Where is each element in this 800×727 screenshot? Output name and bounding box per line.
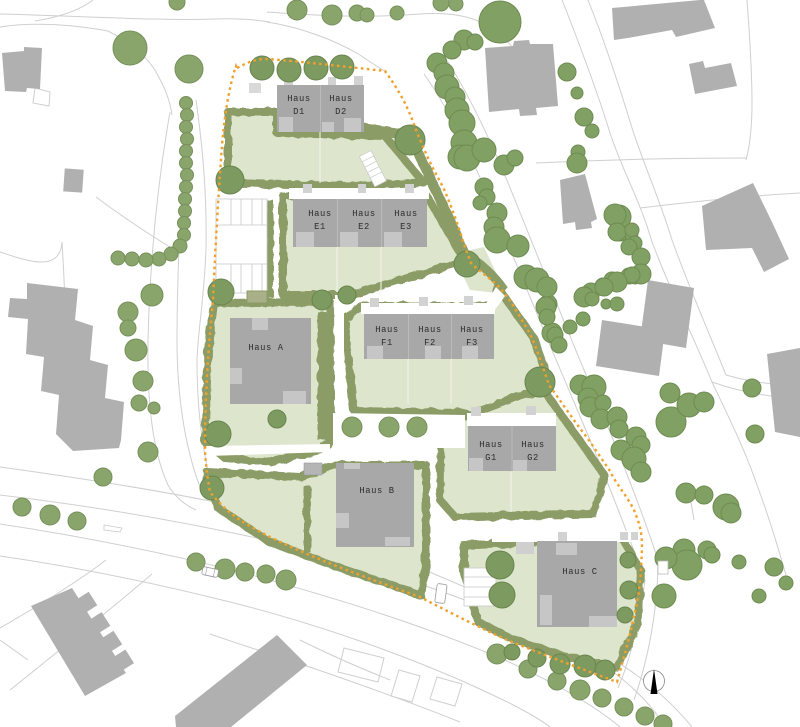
svg-text:Haus: Haus [329, 94, 353, 104]
svg-text:E3: E3 [400, 222, 412, 232]
svg-text:E1: E1 [314, 222, 326, 232]
svg-text:Haus B: Haus B [359, 486, 394, 496]
svg-text:Haus: Haus [394, 209, 418, 219]
svg-text:Haus: Haus [308, 209, 332, 219]
svg-text:Haus: Haus [375, 325, 399, 335]
svg-text:Haus: Haus [287, 94, 311, 104]
svg-text:G2: G2 [527, 453, 539, 463]
svg-text:D2: D2 [335, 107, 347, 117]
svg-text:F3: F3 [466, 338, 478, 348]
svg-text:Haus C: Haus C [562, 567, 597, 577]
svg-text:Haus: Haus [418, 325, 442, 335]
svg-text:F1: F1 [381, 338, 393, 348]
svg-text:Haus: Haus [479, 440, 503, 450]
svg-text:Haus: Haus [352, 209, 376, 219]
svg-text:Haus: Haus [460, 325, 484, 335]
svg-text:G1: G1 [485, 453, 497, 463]
svg-text:Haus: Haus [521, 440, 545, 450]
svg-text:D1: D1 [293, 107, 305, 117]
svg-text:Haus A: Haus A [248, 343, 283, 353]
svg-text:F2: F2 [424, 338, 436, 348]
svg-text:E2: E2 [358, 222, 370, 232]
